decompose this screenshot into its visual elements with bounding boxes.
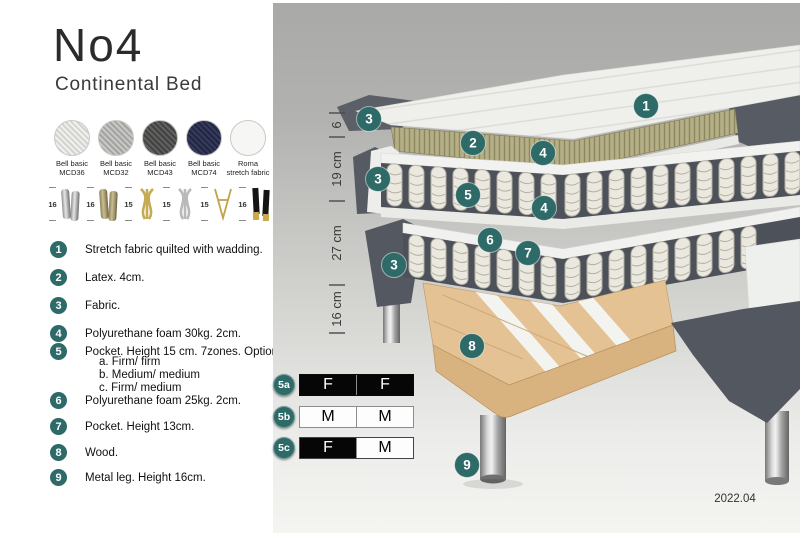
svg-text:1: 1 xyxy=(642,99,650,114)
leg-shadow xyxy=(463,479,523,489)
swatch-label: Bell basic xyxy=(144,159,176,168)
firmness-cell: F xyxy=(300,438,356,458)
dim-label-19cm: 19 cm xyxy=(329,151,344,186)
silver-twisted-leg-icon xyxy=(172,186,198,222)
swatch-label: Bell basic xyxy=(188,159,220,168)
feature-text: Polyurethane foam 30kg. 2cm. xyxy=(85,328,241,340)
leg-height: 16 xyxy=(238,200,246,209)
callout-7: 7 xyxy=(516,241,541,266)
feature-item: 2 Latex. 4cm. xyxy=(50,269,144,286)
svg-text:4: 4 xyxy=(540,201,548,216)
page-subtitle: Continental Bed xyxy=(55,74,202,96)
feature-text: Polyurethane foam 25kg. 2cm. xyxy=(85,395,241,407)
callout-3-bottom: 3 xyxy=(382,253,407,278)
feature-number-badge: 5 xyxy=(50,343,67,360)
callout-4-upper: 4 xyxy=(531,141,556,166)
svg-text:3: 3 xyxy=(390,258,398,273)
callout-3-top: 3 xyxy=(357,107,382,132)
firmness-option-5a: 5a F F xyxy=(273,374,414,396)
page-title: No4 xyxy=(53,22,143,68)
feature-number-badge: 8 xyxy=(50,444,67,461)
gold-hairpin-leg-icon xyxy=(210,186,236,222)
feature-text: Latex. 4cm. xyxy=(85,272,144,284)
firmness-cell: M xyxy=(356,407,413,427)
fabric-swatch-disc xyxy=(142,120,178,156)
leg-height: 15 xyxy=(200,200,208,209)
callout-2: 2 xyxy=(461,131,486,156)
feature-number-badge: 6 xyxy=(50,392,67,409)
leg-option: 15 xyxy=(123,186,161,222)
callout-5: 5 xyxy=(456,183,481,208)
brass-cylinder-leg-icon xyxy=(96,186,122,222)
feature-item: 4 Polyurethane foam 30kg. 2cm. xyxy=(50,325,241,342)
dimension-labels: 6 19 cm 27 cm 16 cm xyxy=(329,121,344,326)
svg-text:3: 3 xyxy=(374,172,382,187)
leg-height: 16 xyxy=(48,200,56,209)
leg-height: 16 xyxy=(86,200,94,209)
firmness-cell: M xyxy=(300,407,356,427)
svg-text:4: 4 xyxy=(539,146,547,161)
feature-number-badge: 3 xyxy=(50,297,67,314)
fabric-swatch: Bell basicMCD43 xyxy=(138,120,182,177)
fabric-swatch: Bell basicMCD74 xyxy=(182,120,226,177)
feature-item: 1 Stretch fabric quilted with wadding. xyxy=(50,241,263,258)
dim-label-27cm: 27 cm xyxy=(329,225,344,260)
feature-5-option-b: b. Medium/ medium xyxy=(99,369,200,381)
fabric-swatch-disc xyxy=(186,120,222,156)
fabric-swatch-row: Bell basicMCD36 Bell basicMCD32 Bell bas… xyxy=(50,120,272,177)
firmness-badge-5c: 5c xyxy=(273,437,295,459)
fabric-swatch: Bell basicMCD36 xyxy=(50,120,94,177)
swatch-label: Roma xyxy=(238,159,258,168)
fabric-swatch: Bell basicMCD32 xyxy=(94,120,138,177)
firmness-cell: F xyxy=(356,375,413,395)
feature-item: 7 Pocket. Height 13cm. xyxy=(50,418,194,435)
feature-item: 5 Pocket. Height 15 cm. 7zones. Option: xyxy=(50,343,281,360)
callout-1: 1 xyxy=(634,94,659,119)
callout-6: 6 xyxy=(478,228,503,253)
callout-8: 8 xyxy=(460,334,485,359)
firmness-cell: F xyxy=(300,375,356,395)
feature-number-badge: 7 xyxy=(50,418,67,435)
fabric-swatch-disc xyxy=(98,120,134,156)
feature-item: 8 Wood. xyxy=(50,444,118,461)
swatch-label: Bell basic xyxy=(56,159,88,168)
feature-text: Stretch fabric quilted with wadding. xyxy=(85,244,263,256)
firmness-bar-5c: F M xyxy=(299,437,414,459)
callout-3-middle: 3 xyxy=(366,167,391,192)
fabric-swatch-disc xyxy=(54,120,90,156)
bed-cutaway-panel: 6 19 cm 27 cm 16 cm 1 3 2 4 3 5 4 6 7 3 … xyxy=(273,3,800,533)
dim-label-16cm: 16 cm xyxy=(329,291,344,326)
firmness-bar-5b: M M xyxy=(299,406,414,428)
front-leg xyxy=(480,415,506,479)
leg-option: 16 xyxy=(47,186,85,222)
leg-options-row: 16 16 15 xyxy=(47,186,275,222)
feature-text: Metal leg. Height 16cm. xyxy=(85,472,206,484)
firmness-option-5b: 5b M M xyxy=(273,406,414,428)
feature-item: 3 Fabric. xyxy=(50,297,120,314)
feature-item: 9 Metal leg. Height 16cm. xyxy=(50,469,206,486)
svg-text:9: 9 xyxy=(463,458,471,473)
feature-text: Fabric. xyxy=(85,300,120,312)
svg-text:3: 3 xyxy=(365,112,373,127)
svg-text:8: 8 xyxy=(468,339,476,354)
leg-option: 15 xyxy=(161,186,199,222)
feature-number-badge: 2 xyxy=(50,269,67,286)
fabric-swatch-disc xyxy=(230,120,266,156)
leg-option: 15 xyxy=(199,186,237,222)
bottom-box-layer xyxy=(365,207,800,489)
leg-height: 15 xyxy=(162,200,170,209)
callout-4-lower: 4 xyxy=(532,196,557,221)
svg-text:5: 5 xyxy=(464,188,472,203)
firmness-badge-5a: 5a xyxy=(273,374,295,396)
box-frame-right-end xyxy=(745,239,800,311)
feature-number-badge: 9 xyxy=(50,469,67,486)
swatch-label: Bell basic xyxy=(100,159,132,168)
chrome-cylinder-leg-icon xyxy=(58,186,84,222)
firmness-badge-5b: 5b xyxy=(273,406,295,428)
feature-item: 6 Polyurethane foam 25kg. 2cm. xyxy=(50,392,241,409)
feature-number-badge: 1 xyxy=(50,241,67,258)
fabric-swatch: Romastretch fabric xyxy=(226,120,270,177)
leg-height: 15 xyxy=(124,200,132,209)
dim-label-6: 6 xyxy=(329,121,344,128)
feature-text: Wood. xyxy=(85,447,118,459)
feature-text: Pocket. Height 13cm. xyxy=(85,421,194,433)
back-right-leg xyxy=(765,411,789,481)
version-stamp: 2022.04 xyxy=(703,493,767,505)
leg-option: 16 xyxy=(237,186,275,222)
svg-text:2: 2 xyxy=(469,136,477,151)
product-sheet: No4 Continental Bed Bell basicMCD36 Bell… xyxy=(0,0,800,533)
firmness-bar-5a: F F xyxy=(299,374,414,396)
black-gold-leg-icon xyxy=(248,186,274,222)
svg-text:6: 6 xyxy=(486,233,494,248)
firmness-option-5c: 5c F M xyxy=(273,437,414,459)
leg-option: 16 xyxy=(85,186,123,222)
feature-5-option-a: a. Firm/ firm xyxy=(99,356,160,368)
gold-twisted-leg-icon xyxy=(134,186,160,222)
feature-number-badge: 4 xyxy=(50,325,67,342)
back-right-leg-base xyxy=(765,477,789,485)
firmness-cell: M xyxy=(356,438,413,458)
callout-9: 9 xyxy=(455,453,480,478)
svg-text:7: 7 xyxy=(524,246,532,261)
box-side-fabric-right xyxy=(671,301,800,423)
